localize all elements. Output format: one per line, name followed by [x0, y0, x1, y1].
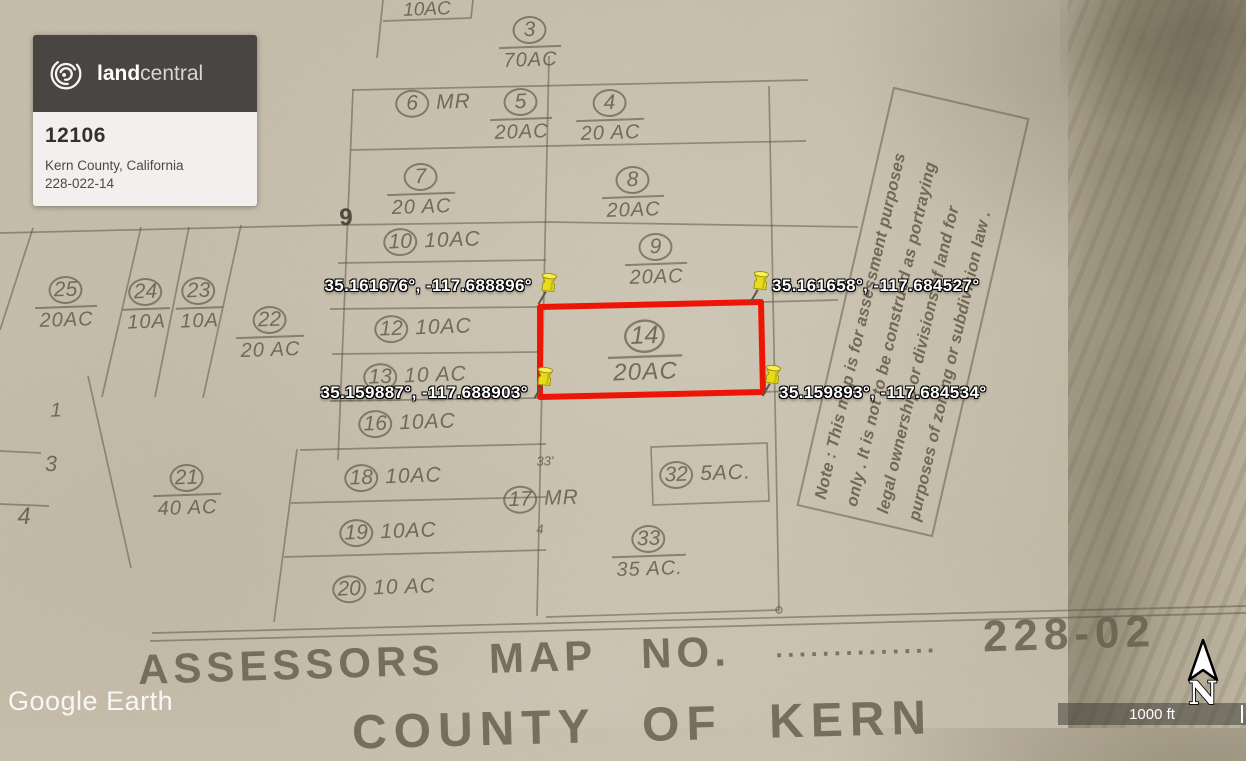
parcel-number: 8: [615, 165, 650, 194]
parcel-label-3: 370AC: [498, 15, 562, 73]
parcel-acreage: 10AC: [399, 409, 456, 435]
parcel-label-4: 420 AC: [575, 88, 645, 146]
compass-n-label: N: [1188, 674, 1217, 706]
map-text-4: 4: [17, 503, 31, 531]
scale-bar: 1000 ft: [1058, 703, 1246, 725]
parcel-acreage: 5AC.: [700, 460, 751, 486]
parcel-number: 24: [128, 277, 163, 306]
scale-bar-label: 1000 ft: [1129, 706, 1175, 723]
assessor-note-box: Note : This map is for assessment purpos…: [796, 87, 1029, 537]
wordmark-bold: land: [97, 62, 140, 85]
map-pin-bottom-left[interactable]: [528, 366, 560, 402]
parcel-number: 32: [659, 460, 694, 489]
parcel-label-32: 325AC.: [659, 458, 752, 489]
parcel-label-16: 1610AC: [358, 407, 456, 438]
parcel-label-10: 1010AC: [383, 225, 481, 256]
parcel-number: 22: [252, 305, 287, 334]
parcel-acreage: 10AC: [385, 463, 442, 489]
parcel-label-19: 1910AC: [339, 516, 437, 547]
parcel-label-8: 820AC: [601, 165, 665, 223]
parcel-acreage: 20 AC: [576, 118, 645, 146]
coordinate-label-top-right: 35.161658°, -117.684527°: [772, 276, 980, 296]
parcel-acreage: 20 AC: [236, 335, 305, 363]
parcel-number: 25: [48, 275, 83, 304]
listing-apn: 228-022-14: [45, 175, 245, 193]
parcel-number: 14: [623, 319, 665, 354]
parcel-label-18: 1810AC: [344, 461, 442, 492]
scale-bar-tick: [1241, 705, 1243, 723]
parcel-acreage: 10 AC: [373, 574, 436, 600]
parcel-acreage: 10AC: [380, 518, 437, 544]
parcel-label-5: 520AC: [489, 87, 553, 145]
parcel-acreage: 40 AC: [153, 493, 222, 521]
wordmark-light: central: [140, 62, 203, 85]
map-text-10AC: 10AC: [403, 0, 451, 22]
map-pin-bottom-right[interactable]: [756, 364, 788, 400]
listing-id: 12106: [45, 124, 245, 148]
parcel-acreage: 10A: [176, 306, 223, 334]
parcel-acreage: 20AC: [602, 195, 665, 223]
coordinate-label-bottom-right: 35.159893°, -117.684534°: [779, 383, 987, 403]
map-text-33: 33': [536, 453, 553, 469]
coordinate-label-bottom-left: 35.159887°, -117.688903°: [320, 383, 528, 403]
leader-dots: ··············: [775, 635, 939, 670]
parcel-number: 3: [512, 15, 547, 44]
parcel-label-23: 2310A: [175, 276, 224, 334]
parcel-label-6: 6MR: [395, 88, 472, 119]
coordinate-label-top-left: 35.161676°, -117.688896°: [324, 276, 532, 296]
parcel-number: 12: [374, 315, 409, 344]
parcel-number: 33: [631, 524, 666, 553]
parcel-label-14: 1420AC: [607, 318, 684, 388]
parcel-number: 20: [332, 575, 367, 604]
map-pin-top-left[interactable]: [532, 272, 564, 308]
assessors-map-title: ASSESSORS MAP NO. ·············· 228-02: [137, 613, 1157, 695]
parcel-acreage: 20AC: [490, 117, 553, 145]
parcel-number: 4: [592, 88, 627, 117]
map-text-9: 9: [339, 204, 353, 232]
parcel-number: 18: [344, 464, 379, 493]
parcel-acreage: 70AC: [499, 45, 562, 73]
google-earth-watermark: Google Earth: [8, 686, 173, 717]
parcel-number: 5: [503, 87, 538, 116]
parcel-acreage: 35 AC.: [612, 554, 687, 583]
parcel-number: 23: [181, 276, 216, 305]
parcel-acreage: 20 AC: [387, 192, 456, 220]
parcel-acreage: 10A: [123, 307, 170, 335]
google-earth-viewport[interactable]: { "brand_card": { "logo_text_bold": "lan…: [0, 0, 1246, 728]
assessors-map-number: 228-02: [982, 607, 1156, 661]
parcel-number: 7: [403, 162, 438, 191]
parcel-label-22: 2220 AC: [235, 305, 305, 363]
parcel-label-12: 1210AC: [374, 312, 472, 343]
parcel-label-9: 920AC: [624, 232, 688, 290]
parcel-number: 10: [383, 228, 418, 257]
parcel-label-20: 2010 AC: [332, 572, 437, 604]
north-compass[interactable]: N: [1179, 638, 1227, 706]
parcel-label-21: 2140 AC: [152, 463, 222, 521]
parcel-acreage: 20AC: [608, 354, 683, 388]
parcel-label-17: 17MR: [503, 484, 580, 515]
parcel-label-33: 3335 AC.: [611, 524, 687, 583]
parcel-acreage: 20AC: [35, 305, 98, 333]
map-text-1: 1: [50, 399, 62, 422]
map-text-4: 4: [536, 521, 544, 536]
parcel-number: 6: [395, 89, 430, 118]
parcel-label-7: 720 AC: [386, 162, 456, 220]
landcentral-logo-icon: [45, 53, 87, 95]
parcel-acreage: 10AC: [415, 314, 472, 340]
parcel-label-25: 2520AC: [34, 275, 98, 333]
landcentral-wordmark: landcentral: [97, 62, 203, 86]
listing-location: Kern County, California: [45, 157, 245, 175]
map-pin-top-right[interactable]: [744, 270, 776, 306]
parcel-number: 19: [339, 519, 374, 548]
parcel-acreage: MR: [544, 486, 579, 511]
terrain-dark-corner: [1060, 0, 1246, 150]
listing-card-header: landcentral: [33, 35, 257, 112]
map-text-3: 3: [44, 451, 57, 477]
parcel-number: 21: [169, 463, 204, 492]
parcel-label-24: 2410A: [122, 277, 171, 335]
parcel-number: 16: [358, 410, 393, 439]
parcel-number: 17: [503, 485, 538, 514]
parcel-acreage: 10AC: [424, 227, 481, 253]
parcel-acreage: MR: [436, 90, 471, 115]
listing-card-body: 12106 Kern County, California 228-022-14: [33, 112, 257, 206]
county-title: COUNTY OF KERN: [351, 690, 933, 760]
assessors-map-title-text: ASSESSORS MAP NO.: [137, 627, 731, 693]
parcel-acreage: 20AC: [625, 262, 688, 290]
listing-card: landcentral 12106 Kern County, Californi…: [33, 35, 257, 206]
parcel-number: 9: [638, 232, 673, 261]
